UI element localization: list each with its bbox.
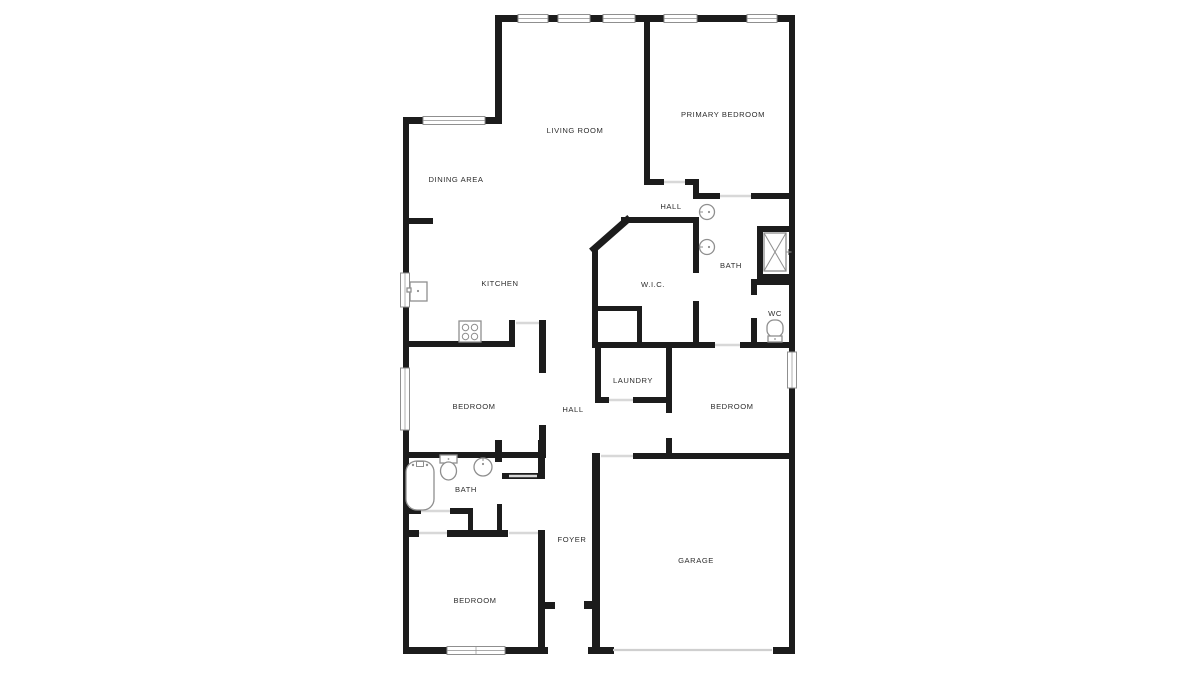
room-label-bath-primary: BATH — [720, 261, 742, 270]
room-label-garage: GARAGE — [678, 556, 714, 565]
sink-icon — [474, 458, 492, 476]
sink-icon — [700, 205, 715, 220]
toilet-icon — [440, 455, 457, 480]
stove-icon — [459, 321, 481, 342]
room-label-living-room: LIVING ROOM — [547, 126, 604, 135]
room-label-bedroom-right: BEDROOM — [710, 402, 753, 411]
room-label-dining-area: DINING AREA — [429, 175, 484, 184]
room-label-laundry: LAUNDRY — [613, 376, 653, 385]
room-label-wc: WC — [768, 309, 782, 318]
floor-plan-drawing: LIVING ROOM PRIMARY BEDROOM DINING AREA … — [0, 0, 1200, 674]
shower-icon — [764, 233, 792, 271]
room-label-wic: W.I.C. — [641, 280, 665, 289]
toilet-icon — [767, 320, 783, 342]
room-label-bedroom-middle: BEDROOM — [452, 402, 495, 411]
room-label-hall-upper: HALL — [660, 202, 681, 211]
sink-icon — [700, 240, 715, 255]
bathtub-icon — [406, 461, 434, 510]
refrigerator-icon — [407, 282, 427, 301]
room-label-kitchen: KITCHEN — [481, 279, 518, 288]
room-label-bath-hall: BATH — [455, 485, 477, 494]
room-label-hall-lower: HALL — [562, 405, 583, 414]
room-label-primary-bedroom: PRIMARY BEDROOM — [681, 110, 765, 119]
room-label-foyer: FOYER — [558, 535, 587, 544]
room-label-bedroom-bottom: BEDROOM — [453, 596, 496, 605]
floor-plan-page: LIVING ROOM PRIMARY BEDROOM DINING AREA … — [0, 0, 1200, 674]
